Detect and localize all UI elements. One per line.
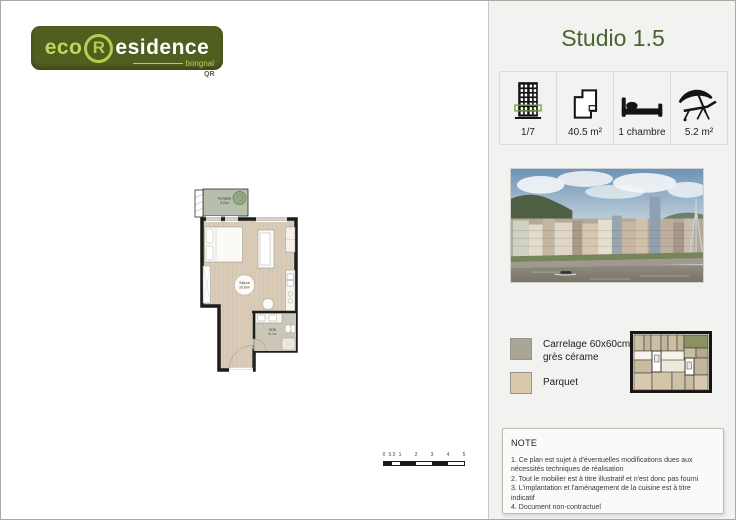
boat: [560, 271, 571, 273]
brand-sub-text: bongnal: [186, 59, 214, 68]
brand-r-badge: R: [84, 34, 113, 63]
sejour-area: 29.6m²: [239, 286, 250, 290]
stat-floor: 1/7: [500, 72, 556, 144]
note-item: 1. Ce plan est sujet à d'éventuelles mod…: [511, 456, 715, 475]
sdb-label: SDB: [269, 328, 276, 332]
stat-surface: 40.5 m²: [556, 72, 613, 144]
terrace-label: Terrasse: [218, 197, 231, 201]
scale-tick: 0: [383, 452, 386, 458]
brand-r-letter: R: [93, 38, 105, 58]
scale-bar-strip: [383, 461, 465, 466]
floorplan-outline-icon: [568, 84, 602, 124]
stat-terrace-label: 5.2 m²: [685, 127, 713, 138]
note-item: 3. L'implantation et l'aménagement de la…: [511, 484, 715, 503]
wardrobe: [203, 266, 211, 303]
scale-tick: 0.5: [389, 452, 396, 458]
stat-terrace: 5.2 m²: [670, 72, 727, 144]
stat-floor-label: 1/7: [521, 127, 535, 138]
terrace-area: 5.2m²: [220, 201, 229, 205]
scale-bar: 0 0.5 1 2 3 4 5: [378, 452, 470, 470]
note-heading: NOTE: [511, 438, 715, 448]
scale-tick: 3: [431, 452, 434, 458]
scale-tick: 4: [447, 452, 450, 458]
legend-swatch-carrelage: [510, 338, 532, 360]
key-plan: [630, 331, 712, 397]
planter: [195, 190, 203, 217]
note-item: 2. Tout le mobilier est à titre illustra…: [511, 475, 715, 484]
sejour-label: Séjour: [239, 281, 251, 285]
scale-tick: 5: [463, 452, 466, 458]
bed: [205, 227, 243, 262]
bed-icon: [620, 92, 664, 124]
unit-title: Studio 1.5: [489, 25, 736, 52]
sejour-label-badge: [235, 275, 255, 295]
stats-row: 1/7 40.5 m² 1 chambre: [499, 71, 728, 145]
key-plan-highlight-unit: [684, 335, 708, 348]
parasol-lounger-icon: [677, 86, 721, 124]
brand-logo: eco R esidence bongnal: [31, 26, 223, 70]
brand-residence-text: esidence: [115, 36, 209, 60]
riverside-photo: [510, 168, 704, 283]
legend-swatch-parquet: [510, 372, 532, 394]
brand-eco-text: eco: [45, 36, 83, 60]
brand-qr-text: QR: [204, 71, 215, 78]
legend-label-parquet: Parquet: [543, 377, 643, 390]
note-item: 4. Document non-contractuel: [511, 503, 715, 512]
building-floor-icon: [510, 78, 546, 124]
stat-bedrooms: 1 chambre: [613, 72, 670, 144]
brand-underline: [133, 63, 183, 64]
terrace-plant: [233, 192, 246, 205]
sofa: [258, 230, 274, 268]
note-box: NOTE 1. Ce plan est sujet à d'éventuelle…: [502, 428, 724, 514]
stat-bedrooms-label: 1 chambre: [618, 127, 665, 138]
legend-label-carrelage: Carrelage 60x60cm grès cérame: [543, 339, 643, 364]
info-panel: Studio 1.5 1/7: [488, 1, 736, 520]
scale-tick: 1: [399, 452, 402, 458]
plan-sheet: eco R esidence bongnal QR Terrasse: [0, 0, 736, 520]
brand-subtitle: bongnal: [133, 59, 214, 68]
stat-surface-label: 40.5 m²: [568, 127, 602, 138]
scale-tick: 2: [415, 452, 418, 458]
sdb-area: 5.7m²: [269, 332, 277, 336]
table: [263, 299, 274, 310]
floor-plan: Terrasse 5.2m²: [176, 181, 302, 381]
